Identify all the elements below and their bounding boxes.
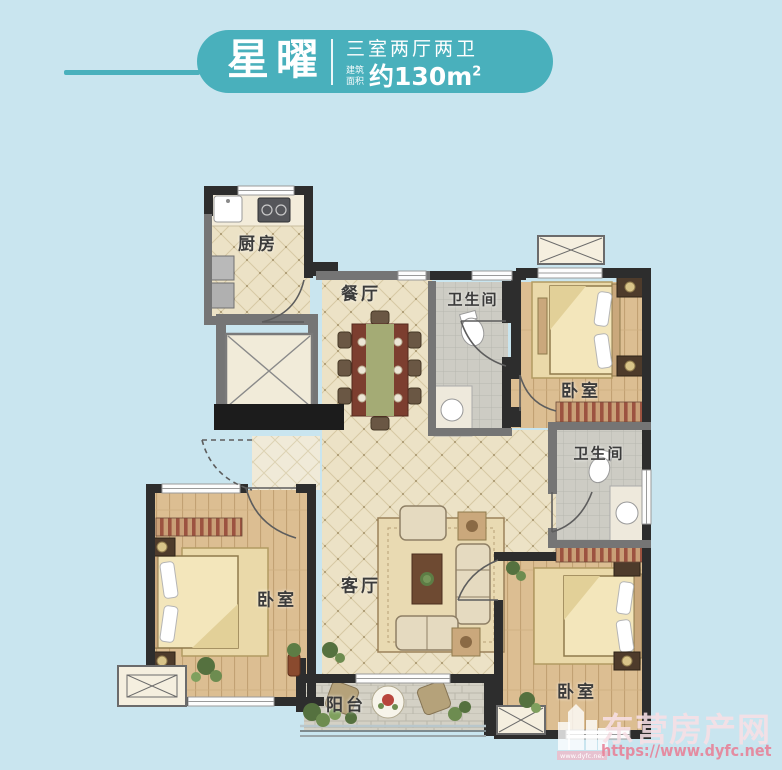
entry-door: [202, 440, 252, 490]
room-label-dining: 餐厅: [341, 280, 381, 305]
bath-sink: [616, 502, 638, 524]
bath-sink: [441, 399, 463, 421]
dining-chair: [408, 332, 421, 348]
armchair: [400, 506, 446, 540]
watermark-logo-caption: www.dyfc.net: [560, 752, 604, 760]
dining-chair: [338, 332, 351, 348]
window: [398, 271, 426, 280]
floorplan-page: 星曜 三室两厅两卫 建筑 面积 约130m2: [0, 0, 782, 770]
sofa: [456, 544, 490, 624]
window: [162, 484, 240, 493]
balcony-slider-window: [356, 674, 450, 683]
living-furniture: [378, 506, 504, 656]
room-label-bath-middle: 卫生间: [573, 443, 624, 464]
wardrobe: [556, 546, 644, 562]
dining-chair: [408, 388, 421, 404]
room-label-bedroom-left: 卧室: [257, 586, 297, 611]
room-label-bath-top: 卫生间: [447, 289, 498, 310]
window: [642, 470, 651, 524]
room-label-kitchen: 厨房: [238, 230, 278, 255]
core-wall: [214, 404, 344, 430]
window: [472, 271, 512, 280]
window: [188, 697, 274, 706]
dining-chair: [371, 417, 389, 430]
wardrobe: [156, 518, 242, 536]
bed-bench: [538, 298, 547, 354]
watermark-site-url: https://www.dyfc.net: [601, 741, 772, 760]
nightstand: [614, 560, 640, 576]
room-label-balcony: 阳台: [326, 691, 366, 716]
dining-chair: [338, 388, 351, 404]
window: [238, 186, 294, 195]
kitchen-stove: [258, 198, 290, 222]
window: [538, 268, 602, 278]
table-runner: [366, 324, 394, 416]
dining-chair: [408, 360, 421, 376]
bedroom-bottom-furniture: [534, 560, 642, 670]
headboard: [634, 574, 642, 658]
dining-chair: [338, 360, 351, 376]
floorplan-canvas: [0, 0, 782, 770]
plant: [322, 642, 338, 658]
room-label-bedroom-right: 卧室: [561, 377, 601, 402]
wardrobe: [556, 402, 644, 422]
dining-chair: [371, 311, 389, 324]
room-label-living: 客厅: [341, 572, 381, 597]
ac-unit: [538, 236, 604, 264]
vase: [288, 654, 300, 676]
room-label-bedroom-bottom: 卧室: [557, 678, 597, 703]
ac-unit: [118, 666, 186, 706]
entry-floor: [252, 436, 320, 490]
